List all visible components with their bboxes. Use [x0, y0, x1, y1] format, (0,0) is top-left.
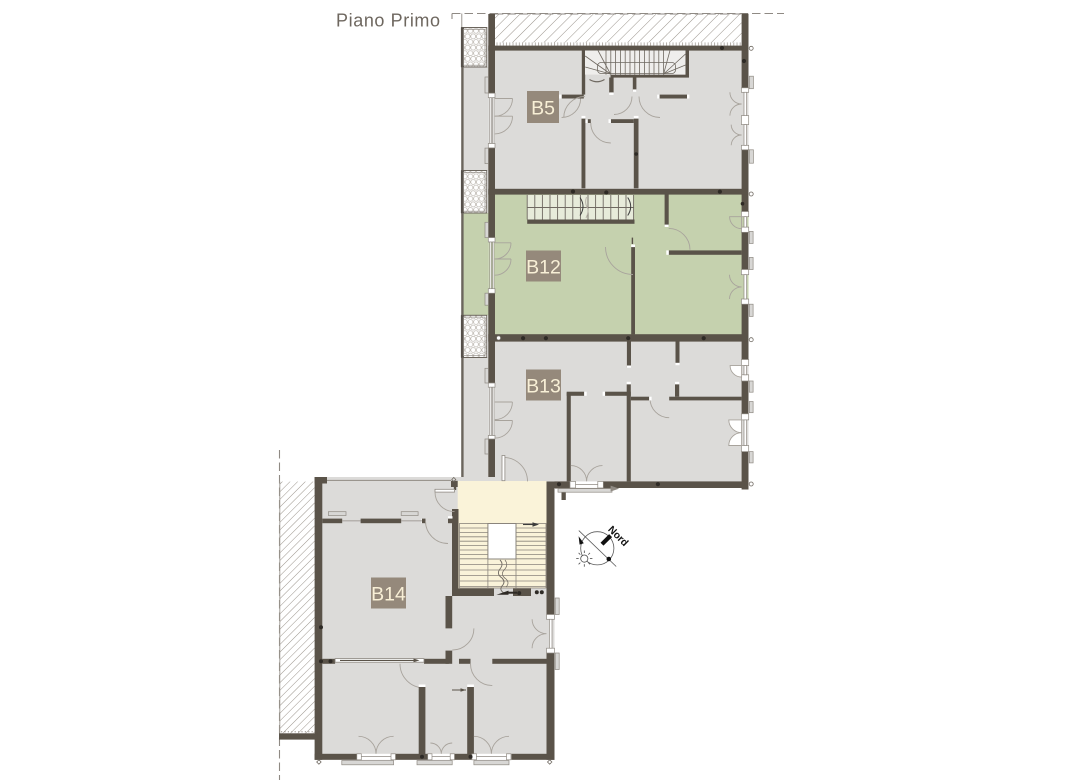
- svg-text:B14: B14: [371, 584, 406, 606]
- svg-text:Piano Primo: Piano Primo: [336, 11, 441, 31]
- svg-text:B12: B12: [526, 257, 561, 279]
- svg-text:B13: B13: [526, 376, 561, 398]
- svg-text:B5: B5: [531, 98, 555, 120]
